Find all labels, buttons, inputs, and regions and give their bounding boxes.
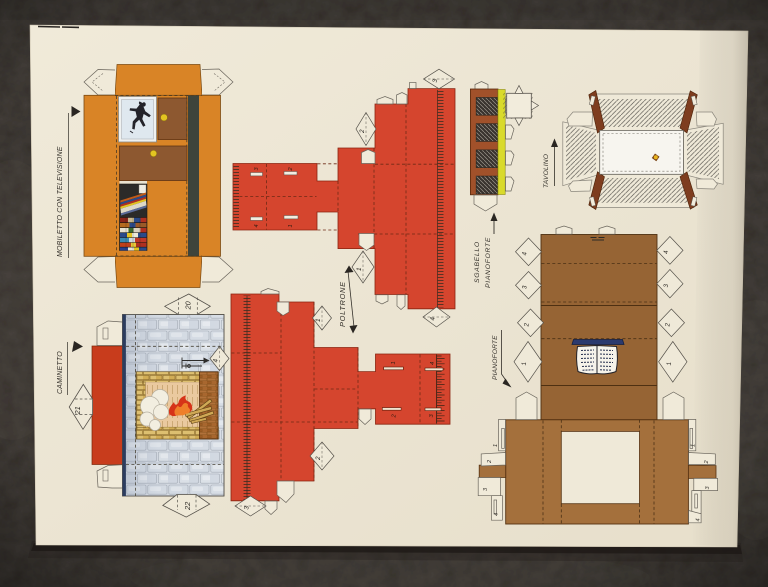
svg-text:1: 1 xyxy=(691,444,697,447)
svg-text:1: 1 xyxy=(288,224,294,227)
svg-text:3: 3 xyxy=(244,506,251,510)
svg-text:CAMINETTO: CAMINETTO xyxy=(57,351,64,394)
svg-text:TAVOLINO: TAVOLINO xyxy=(543,154,550,188)
svg-text:1: 1 xyxy=(315,318,322,322)
svg-text:4: 4 xyxy=(213,359,220,363)
svg-text:4: 4 xyxy=(522,252,529,256)
svg-text:2: 2 xyxy=(665,323,672,328)
svg-text:3: 3 xyxy=(663,284,670,288)
svg-text:1: 1 xyxy=(521,362,528,365)
svg-text:1: 1 xyxy=(356,267,363,271)
svg-text:1: 1 xyxy=(493,444,499,447)
svg-text:PIANOFORTE: PIANOFORTE xyxy=(485,237,492,288)
svg-text:POLTRONE: POLTRONE xyxy=(338,281,347,327)
svg-text:3: 3 xyxy=(522,285,529,289)
svg-text:4: 4 xyxy=(696,518,702,521)
svg-text:SGABELLO: SGABELLO xyxy=(474,241,481,283)
svg-text:2: 2 xyxy=(359,129,366,134)
svg-text:21: 21 xyxy=(73,406,82,415)
svg-text:4: 4 xyxy=(663,250,670,254)
svg-text:22: 22 xyxy=(183,502,192,511)
svg-text:4: 4 xyxy=(254,224,260,227)
svg-text:MOBILETTO CON TELEVISIONE: MOBILETTO CON TELEVISIONE xyxy=(57,146,64,257)
svg-text:4: 4 xyxy=(430,362,436,365)
svg-text:4: 4 xyxy=(430,317,437,321)
svg-text:3: 3 xyxy=(432,79,439,83)
svg-text:2: 2 xyxy=(315,456,322,461)
svg-text:20: 20 xyxy=(184,300,193,310)
svg-text:1: 1 xyxy=(391,361,397,364)
svg-text:PIANOFORTE: PIANOFORTE xyxy=(492,335,499,380)
svg-text:1: 1 xyxy=(666,362,673,365)
svg-text:2: 2 xyxy=(524,323,531,328)
svg-text:4: 4 xyxy=(494,513,500,516)
